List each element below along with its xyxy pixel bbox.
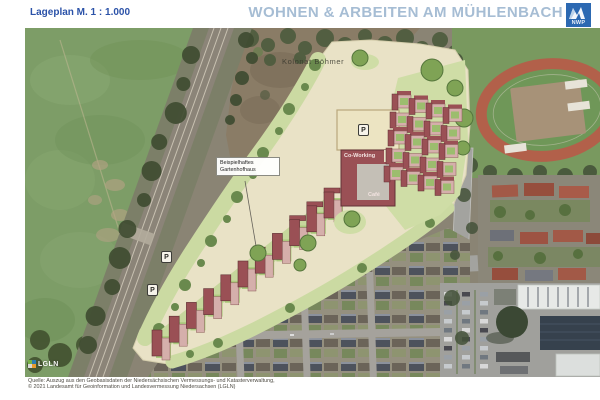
parking-symbol: P [147,284,158,296]
lageplan-page: Lageplan M. 1 : 1.000 WOHNEN & ARBEITEN … [0,0,600,400]
logo-mark-icon [566,5,591,20]
cafe-label: Café [368,192,380,198]
logo-text: NWP [572,20,586,26]
page-title: WOHNEN & ARBEITEN AM MÜHLENBACH [248,4,563,21]
attribution-line2: © 2021 Landesamt für Geoinformation und … [28,384,328,390]
callout-line2: Gartenhofhaus [220,167,276,174]
parking-symbol: P [161,251,172,263]
scale-label: Lageplan M. 1 : 1.000 [30,7,130,18]
source-attribution: Quelle: Auszug aus den Geobasisdaten der… [28,378,328,391]
lgln-watermark: LGLN [28,360,59,368]
area-label: Kolonat Böhmer [282,57,344,66]
parking-symbol: P [358,124,369,136]
gartenhofhaus-callout: Beispielhaftes Gartenhofhaus [216,157,280,176]
coworking-label: Co-Working [344,153,375,159]
lgln-grid-icon [28,360,36,368]
nwp-logo: NWP [566,3,591,27]
